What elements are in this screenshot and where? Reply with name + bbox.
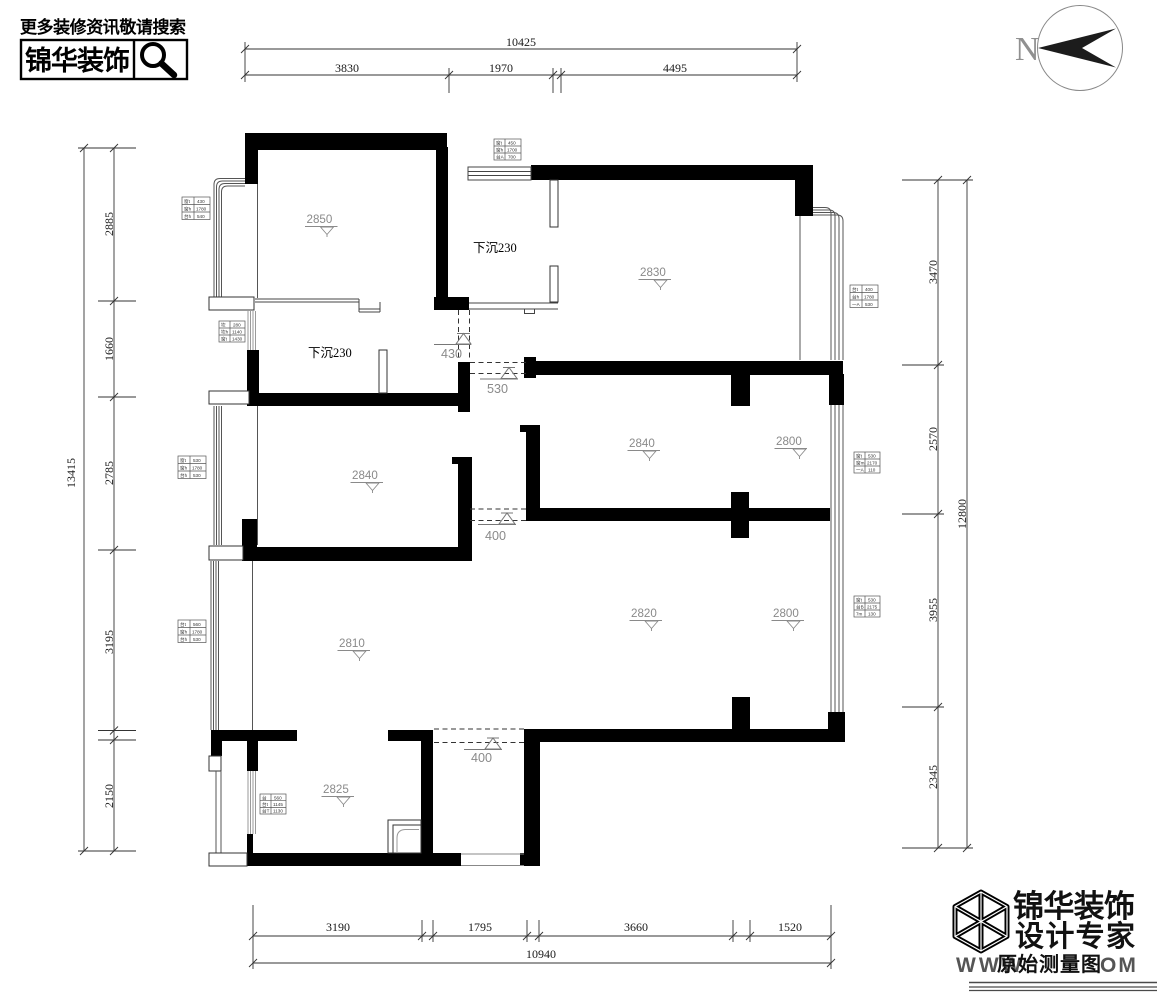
svg-text:110: 110 — [868, 468, 876, 473]
svg-text:窗h: 窗h — [180, 629, 188, 636]
svg-text:下沉230: 下沉230 — [473, 241, 517, 255]
svg-text:台A: 台A — [496, 154, 505, 161]
svg-text:2885: 2885 — [102, 212, 116, 236]
svg-text:400: 400 — [485, 529, 506, 543]
svg-text:2175: 2175 — [867, 605, 878, 610]
svg-text:530: 530 — [865, 302, 873, 307]
svg-text:530: 530 — [487, 382, 508, 396]
svg-text:原始测量图: 原始测量图 — [997, 952, 1101, 976]
svg-text:560: 560 — [193, 622, 201, 627]
svg-text:2570: 2570 — [926, 427, 940, 451]
svg-text:2345: 2345 — [926, 765, 940, 789]
svg-text:530: 530 — [193, 473, 201, 478]
svg-text:130: 130 — [868, 612, 876, 617]
svg-text:2150: 2150 — [102, 784, 116, 808]
svg-text:1780: 1780 — [864, 295, 875, 300]
svg-text:13415: 13415 — [64, 458, 78, 488]
svg-text:3830: 3830 — [335, 61, 359, 75]
svg-text:一A: 一A — [856, 468, 865, 473]
svg-text:窗t: 窗t — [856, 453, 863, 460]
svg-text:3470: 3470 — [926, 260, 940, 284]
svg-text:530: 530 — [868, 454, 876, 459]
svg-text:280: 280 — [233, 323, 241, 328]
svg-text:12800: 12800 — [955, 499, 969, 529]
svg-text:1780: 1780 — [192, 630, 203, 635]
svg-text:下沉230: 下沉230 — [308, 346, 352, 360]
svg-text:1700: 1700 — [507, 148, 518, 153]
svg-text:2820: 2820 — [631, 607, 657, 620]
svg-text:560: 560 — [274, 796, 282, 801]
svg-text:设计专家: 设计专家 — [1015, 919, 1135, 953]
svg-text:台T: 台T — [262, 808, 270, 815]
svg-text:2825: 2825 — [323, 783, 349, 796]
svg-text:4495: 4495 — [663, 61, 687, 75]
svg-text:530: 530 — [193, 637, 201, 642]
svg-text:530: 530 — [868, 598, 876, 603]
svg-text:7m: 7m — [856, 612, 863, 617]
svg-text:3190: 3190 — [326, 920, 350, 934]
svg-text:台B: 台B — [856, 604, 864, 611]
svg-text:540: 540 — [197, 214, 205, 219]
svg-text:430: 430 — [441, 347, 462, 361]
svg-text:窗t: 窗t — [856, 597, 863, 604]
svg-text:窗h: 窗h — [184, 206, 192, 213]
svg-text:台t: 台t — [262, 801, 269, 808]
svg-text:1780: 1780 — [192, 466, 203, 471]
svg-text:3195: 3195 — [102, 630, 116, 654]
svg-text:台h: 台h — [180, 636, 188, 643]
svg-text:1130: 1130 — [273, 809, 283, 814]
svg-text:1660: 1660 — [102, 337, 116, 361]
svg-text:1970: 1970 — [489, 61, 513, 75]
svg-text:1520: 1520 — [778, 920, 802, 934]
svg-text:台t: 台t — [180, 621, 187, 628]
svg-text:台h: 台h — [852, 294, 860, 301]
svg-text:2850: 2850 — [307, 213, 333, 226]
svg-text:台h: 台h — [180, 472, 188, 479]
svg-text:窗t: 窗t — [180, 457, 187, 464]
svg-text:锦华装饰: 锦华装饰 — [25, 45, 130, 76]
svg-text:2800: 2800 — [773, 607, 799, 620]
svg-text:窗m: 窗m — [856, 460, 865, 467]
svg-text:窗h: 窗h — [496, 147, 504, 154]
svg-text:1795: 1795 — [468, 920, 492, 934]
svg-text:2810: 2810 — [339, 637, 365, 650]
svg-text:2840: 2840 — [352, 469, 378, 482]
svg-text:1145: 1145 — [273, 802, 283, 807]
svg-text:2170: 2170 — [867, 461, 878, 466]
svg-text:700: 700 — [508, 155, 516, 160]
svg-text:430: 430 — [197, 199, 205, 204]
svg-text:N: N — [1015, 31, 1040, 68]
svg-text:3955: 3955 — [926, 598, 940, 622]
svg-text:1780: 1780 — [196, 207, 207, 212]
svg-text:更多装修资讯敬请搜索: 更多装修资讯敬请搜索 — [20, 17, 186, 37]
svg-text:2840: 2840 — [629, 437, 655, 450]
svg-text:窗t: 窗t — [221, 336, 228, 343]
svg-text:窗h: 窗h — [180, 465, 188, 472]
svg-text:10940: 10940 — [526, 947, 556, 961]
svg-text:1140: 1140 — [232, 330, 242, 335]
svg-text:窗t: 窗t — [496, 140, 503, 147]
svg-text:坎: 坎 — [221, 322, 226, 329]
svg-text:一A: 一A — [852, 302, 861, 307]
svg-text:10425: 10425 — [506, 35, 536, 49]
svg-text:530: 530 — [193, 458, 201, 463]
svg-text:450: 450 — [508, 141, 516, 146]
svg-text:1430: 1430 — [232, 337, 243, 342]
svg-text:400: 400 — [471, 751, 492, 765]
svg-text:坎h: 坎h — [221, 329, 229, 336]
svg-text:400: 400 — [865, 287, 873, 292]
svg-text:台h: 台h — [184, 213, 192, 220]
svg-text:锦华装饰: 锦华装饰 — [1013, 889, 1135, 924]
svg-text:OM: OM — [1100, 954, 1138, 977]
svg-text:台t: 台t — [852, 286, 859, 293]
svg-text:窗t: 窗t — [184, 198, 191, 205]
svg-text:2830: 2830 — [640, 266, 666, 279]
svg-text:2785: 2785 — [102, 461, 116, 485]
svg-text:3660: 3660 — [624, 920, 648, 934]
svg-text:2800: 2800 — [776, 435, 802, 448]
svg-text:台: 台 — [262, 795, 267, 802]
